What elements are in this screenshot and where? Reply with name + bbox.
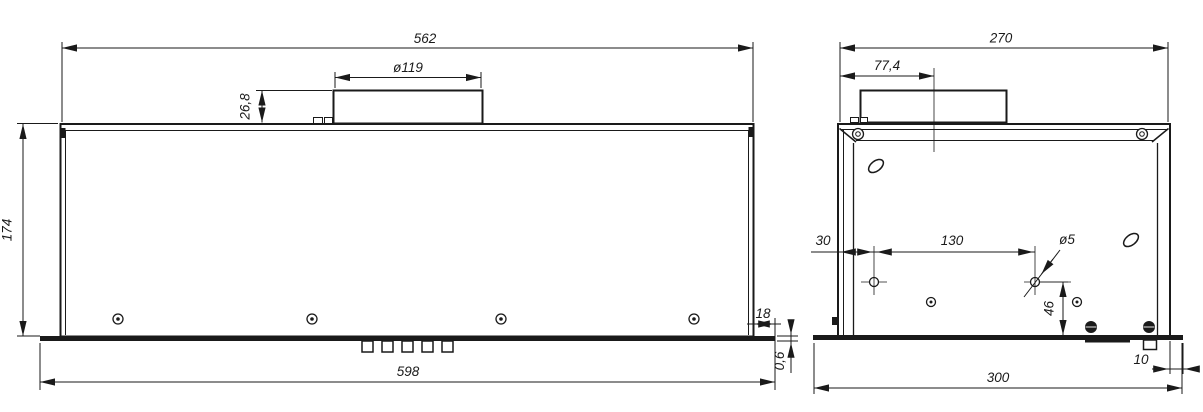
screw-center: [692, 317, 696, 321]
dim-front-sheet-thickness: 0,6: [772, 321, 798, 373]
bottom-tab: [382, 341, 393, 352]
technical-drawing-canvas: 562 ø119 26,8 174 598 18 0,6: [0, 0, 1203, 412]
dim-text: 46: [1042, 301, 1057, 317]
dim-text: 77,4: [874, 58, 900, 73]
side-body-outline: [838, 124, 1170, 337]
dim-text: 598: [397, 364, 420, 379]
side-bottom-panel: [813, 335, 1183, 340]
dim-front-body-height: 174: [0, 124, 58, 337]
front-duct-collar: [334, 91, 483, 124]
screw-center: [930, 301, 933, 304]
collar-tab: [314, 118, 323, 124]
collar-tab: [851, 118, 859, 123]
side-duct-collar: [861, 91, 1007, 123]
edge-latch-mark: [832, 317, 838, 325]
screw-center: [116, 317, 120, 321]
dim-text: 562: [414, 31, 437, 46]
dim-text: 30: [815, 233, 831, 248]
dim-side-bottom-depth: 300: [814, 343, 1182, 394]
front-bottom-tabs: [362, 341, 453, 352]
corner-weld-mark: [749, 127, 753, 137]
bottom-tab: [1144, 340, 1157, 350]
bottom-tab: [422, 341, 433, 352]
dim-text: 174: [0, 219, 15, 242]
dim-text: 0,6: [772, 351, 787, 370]
dim-text: ø119: [393, 60, 423, 75]
side-view: [813, 68, 1183, 350]
dim-text: 270: [989, 31, 1013, 46]
dim-text: 130: [941, 233, 964, 248]
screw-center: [310, 317, 314, 321]
screw-center: [1076, 301, 1079, 304]
dim-side-duct-offset: 77,4: [840, 58, 934, 76]
screw-center: [856, 132, 861, 137]
dim-text: 26,8: [238, 93, 253, 121]
dim-text: 18: [755, 306, 771, 321]
bottom-tab: [362, 341, 373, 352]
corner-weld-mark: [62, 128, 66, 138]
front-view: [40, 91, 775, 353]
dim-text: 300: [987, 370, 1010, 385]
screw-center: [1140, 132, 1145, 137]
front-body-outline: [61, 124, 754, 337]
bottom-tab: [402, 341, 413, 352]
bottom-tab: [442, 341, 453, 352]
dim-text: ø5: [1059, 232, 1075, 247]
screw-center: [499, 317, 503, 321]
dim-text: 10: [1133, 352, 1149, 367]
dim-front-duct-diameter: ø119: [335, 60, 481, 88]
panel-handle-mark: [1085, 340, 1130, 343]
collar-tab: [325, 118, 333, 124]
hood-dimension-drawing: 562 ø119 26,8 174 598 18 0,6: [0, 0, 1203, 412]
collar-tab: [861, 118, 868, 123]
